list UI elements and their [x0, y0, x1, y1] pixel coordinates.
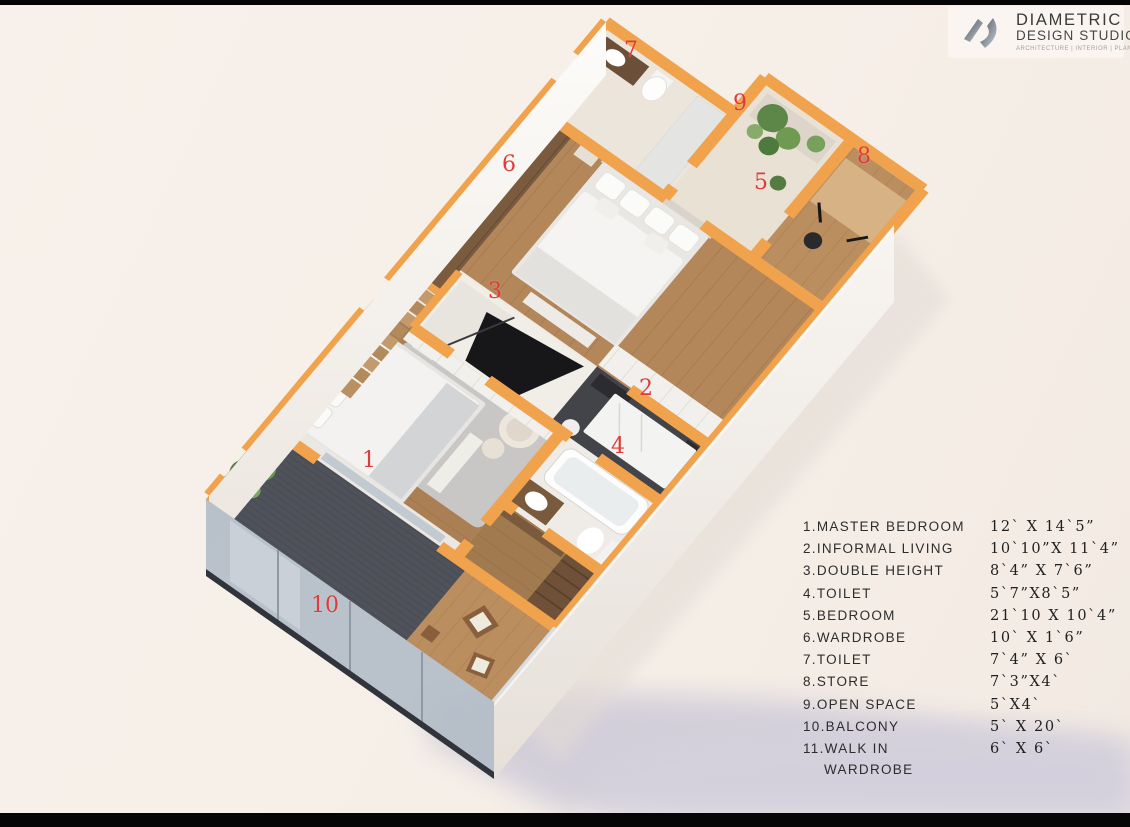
legend-room-size: 10`10”X 11`4”: [990, 542, 1120, 557]
logo-subtitle: DESIGN STUDIO: [1016, 29, 1130, 43]
legend-room-size: 5`7”X8`5”: [990, 587, 1081, 602]
legend-room-name: 4.TOILET: [803, 587, 990, 602]
legend-row: 8.STORE 7`3”X4`: [803, 675, 1123, 690]
legend-room-name: 6.WARDROBE: [803, 631, 990, 646]
legend-room-name: 1.MASTER BEDROOM: [803, 520, 990, 535]
legend-room-size: 6` X 6`: [990, 742, 1054, 757]
legend-room-name: 10.BALCONY: [803, 720, 990, 735]
legend-row: 2.INFORMAL LIVING 10`10”X 11`4”: [803, 542, 1123, 557]
legend-row: 10.BALCONY 5` X 20`: [803, 720, 1123, 735]
legend-room-size: 5`X4`: [990, 698, 1041, 713]
render-canvas: 12345678910 1.MASTER BEDROOM 12` X 14`5”…: [0, 0, 1130, 827]
legend-row: 4.TOILET 5`7”X8`5”: [803, 587, 1123, 602]
studio-logo: DIAMETRIC DESIGN STUDIO ARCHITECTURE | I…: [948, 6, 1124, 58]
legend-row: 3.DOUBLE HEIGHT 8`4” X 7`6”: [803, 564, 1123, 579]
legend-room-name: 7.TOILET: [803, 653, 990, 668]
legend-room-size: 12` X 14`5”: [990, 520, 1095, 535]
legend-row: 9.OPEN SPACE 5`X4`: [803, 698, 1123, 713]
letterbox-bar-top: [0, 0, 1130, 5]
legend-row: 5.BEDROOM 21`10 X 10`4”: [803, 609, 1123, 624]
logo-tagline: ARCHITECTURE | INTERIOR | PLANNING: [1016, 46, 1130, 52]
room-legend: 1.MASTER BEDROOM 12` X 14`5” 2.INFORMAL …: [803, 520, 1123, 785]
legend-row: 11.WALK IN WARDROBE 6` X 6`: [803, 742, 1123, 778]
legend-room-name: 8.STORE: [803, 675, 990, 690]
legend-room-size: 8`4” X 7`6”: [990, 564, 1093, 579]
legend-room-name: 2.INFORMAL LIVING: [803, 542, 990, 557]
legend-room-name: 11.WALK IN WARDROBE: [803, 742, 990, 778]
legend-room-size: 7`3”X4`: [990, 675, 1061, 690]
letterbox-bar-bottom: [0, 813, 1130, 827]
legend-room-size: 7`4” X 6`: [990, 653, 1074, 668]
legend-room-name: 9.OPEN SPACE: [803, 698, 990, 713]
legend-room-size: 10` X 1`6”: [990, 631, 1084, 646]
ds-monogram-icon: [956, 9, 1008, 55]
legend-room-name: 5.BEDROOM: [803, 609, 990, 624]
legend-row: 7.TOILET 7`4” X 6`: [803, 653, 1123, 668]
logo-title: DIAMETRIC: [1016, 12, 1130, 29]
legend-row: 6.WARDROBE 10` X 1`6”: [803, 631, 1123, 646]
legend-row: 1.MASTER BEDROOM 12` X 14`5”: [803, 520, 1123, 535]
legend-room-size: 21`10 X 10`4”: [990, 609, 1117, 624]
legend-room-name: 3.DOUBLE HEIGHT: [803, 564, 990, 579]
legend-room-size: 5` X 20`: [990, 720, 1065, 735]
